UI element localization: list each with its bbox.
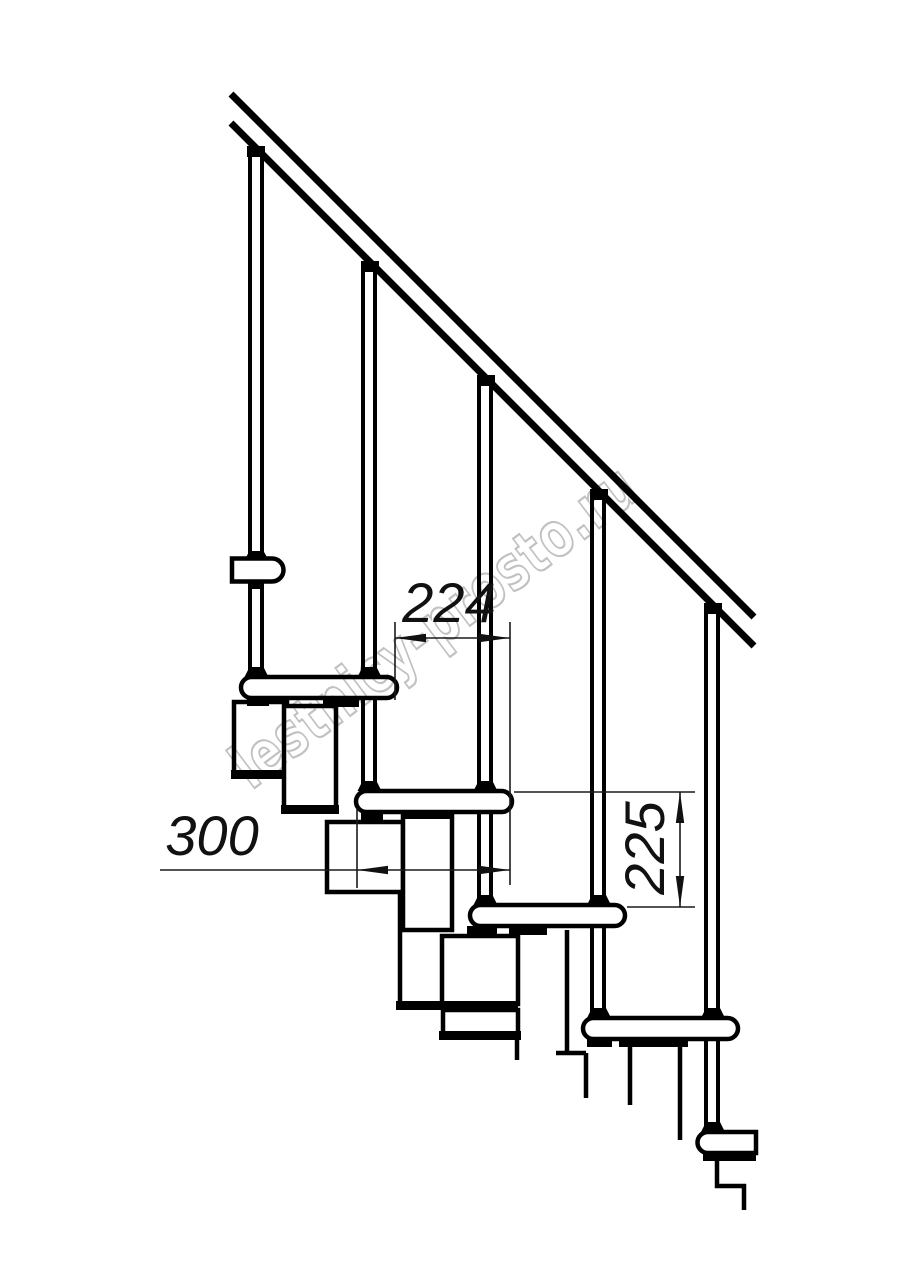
module-column-1-base bbox=[281, 805, 339, 814]
module-box-3-collar-base bbox=[439, 1031, 521, 1040]
tread-5-cut bbox=[698, 1132, 757, 1153]
tread-connector bbox=[587, 1039, 612, 1047]
upper-tread-end-view bbox=[232, 559, 284, 582]
tread-4 bbox=[583, 1018, 738, 1039]
baluster-3-rail-cap bbox=[477, 375, 495, 386]
tread-connector bbox=[703, 1153, 756, 1161]
tread-connector bbox=[467, 926, 497, 935]
tread-connector bbox=[361, 812, 383, 820]
baluster-5-rail-cap bbox=[704, 603, 722, 614]
module-column-2 bbox=[403, 816, 452, 930]
tread-connector bbox=[247, 698, 269, 706]
drawing-canvas: 224 300 225 lestnicy-prosto.ru bbox=[0, 0, 914, 1280]
baluster-4 bbox=[592, 498, 604, 1019]
dimension-label-300: 300 bbox=[165, 804, 258, 867]
tread-connector bbox=[404, 812, 450, 819]
tread-2 bbox=[356, 791, 512, 812]
module-box-3 bbox=[442, 936, 518, 1004]
tread-connector bbox=[250, 582, 264, 589]
module-box-3-collar bbox=[443, 1010, 518, 1034]
baluster-1 bbox=[250, 155, 262, 679]
tread-connector bbox=[619, 1039, 688, 1047]
staircase-technical-drawing: 224 300 225 lestnicy-prosto.ru bbox=[0, 0, 914, 1280]
baluster-3 bbox=[479, 384, 491, 906]
baluster-5 bbox=[706, 612, 718, 1133]
tread-connector bbox=[509, 927, 547, 935]
tread-3 bbox=[470, 905, 625, 926]
dimension-label-225: 225 bbox=[613, 800, 676, 895]
baluster-1-rail-cap bbox=[247, 146, 265, 157]
baluster-2-rail-cap bbox=[361, 261, 379, 272]
module-box-2 bbox=[327, 822, 403, 892]
